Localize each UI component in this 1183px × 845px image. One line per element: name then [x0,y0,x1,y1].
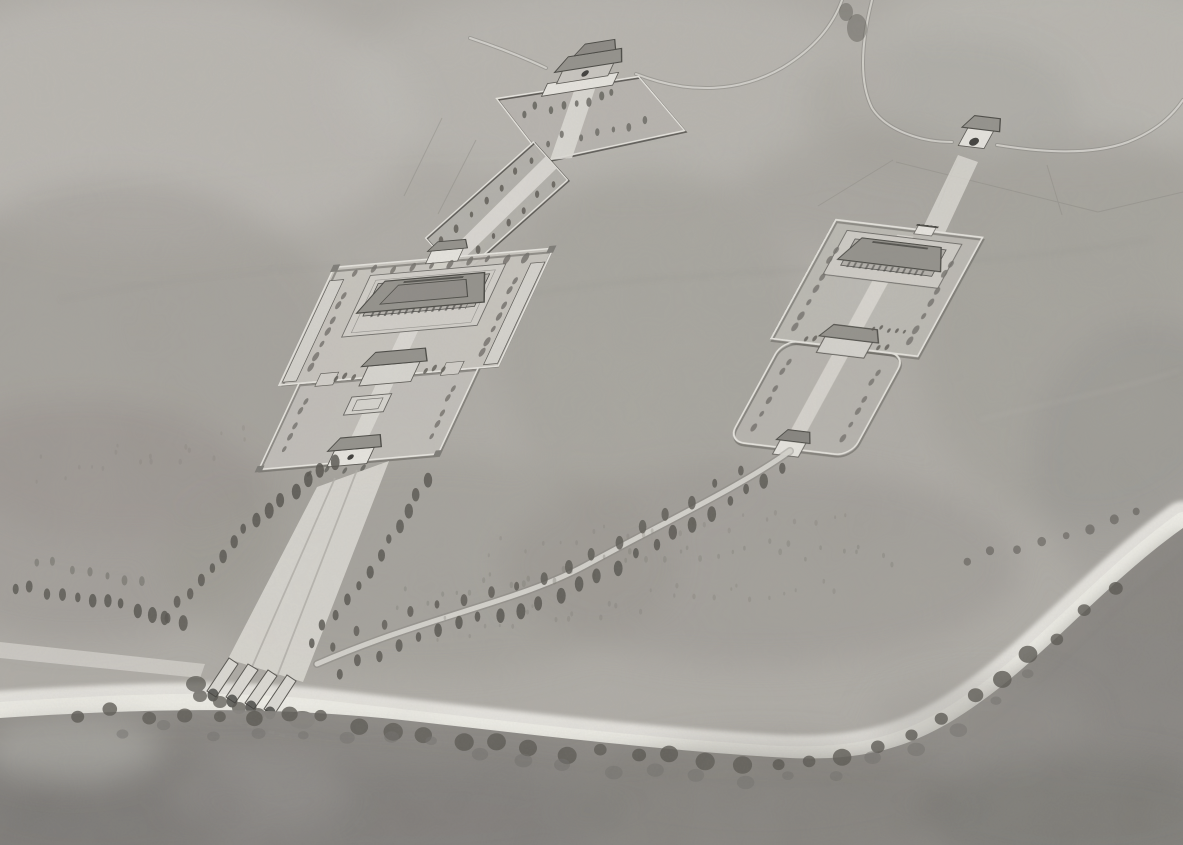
illustration-canvas [0,0,1183,845]
watercolor-aerial-illustration: Monochrome watercolor bird's-eye reconst… [0,0,1183,845]
paper-grain [0,0,1183,845]
